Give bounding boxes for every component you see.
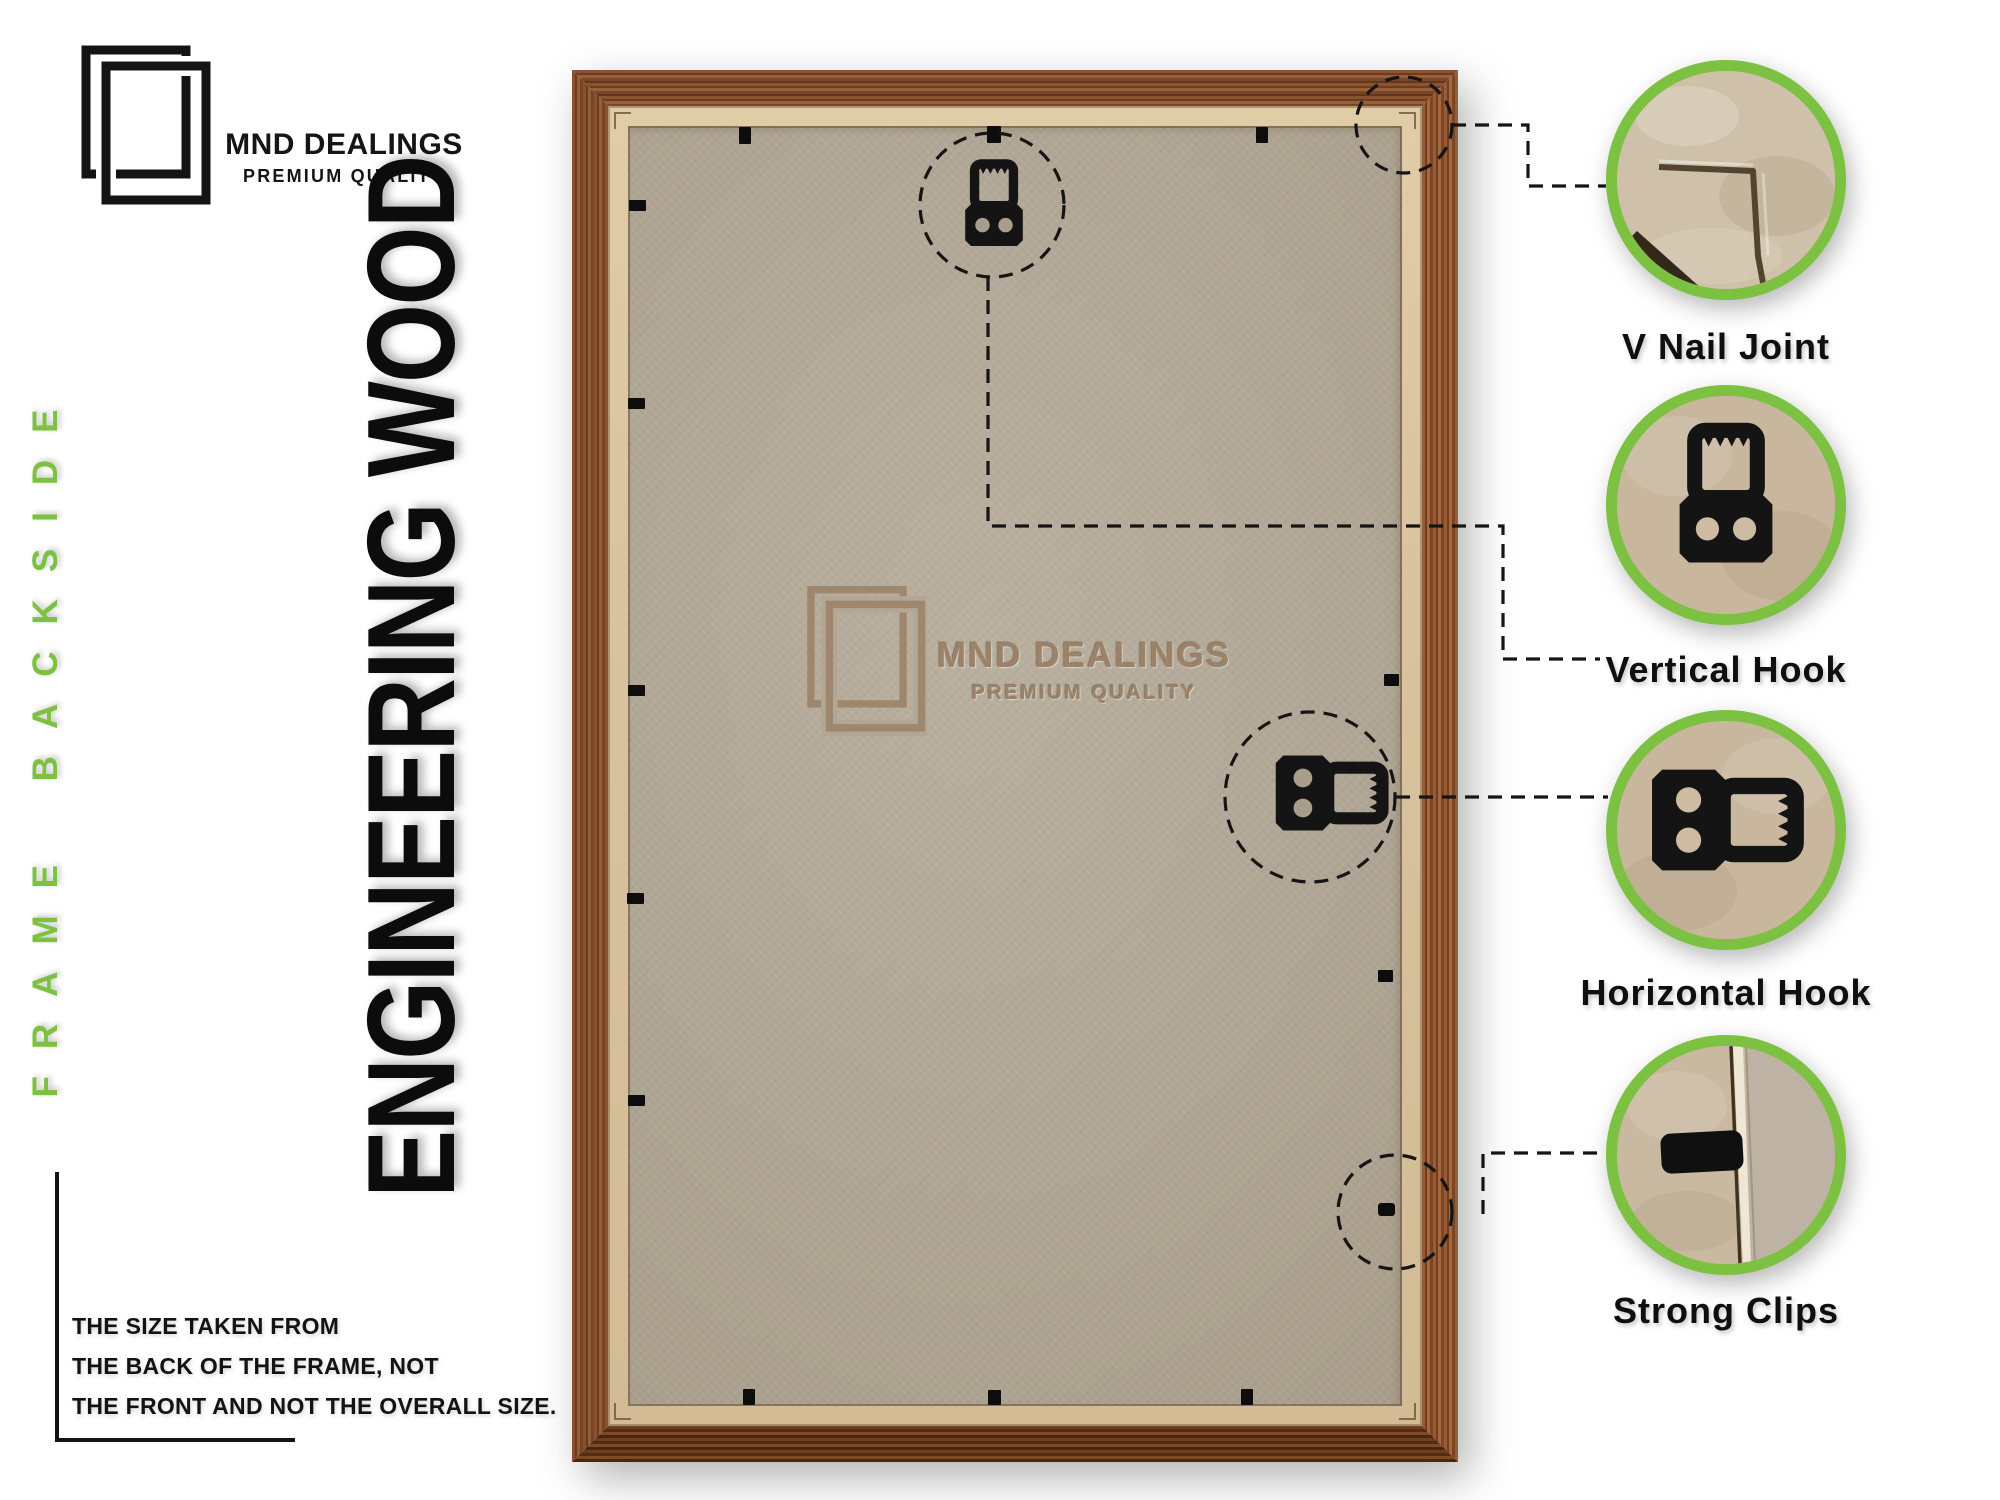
watermark-name: MND DEALINGS: [937, 636, 1231, 676]
size-note: THE SIZE TAKEN FROM THE BACK OF THE FRAM…: [72, 1306, 557, 1426]
frame-clip: [1256, 127, 1268, 143]
frame-clip: [739, 127, 751, 144]
brand-frame-icon: [60, 36, 212, 208]
horizontal-hook-photo: [1617, 721, 1835, 939]
frame-wood-bottom: [572, 1426, 1458, 1462]
vertical-hook-photo: [1617, 396, 1835, 614]
watermark-tagline: PREMIUM QUALITY: [937, 682, 1231, 705]
watermark-text: MND DEALINGS PREMIUM QUALITY: [937, 636, 1231, 705]
frame-clip: [1241, 1389, 1253, 1405]
watermark: MND DEALINGS PREMIUM QUALITY: [787, 552, 1231, 760]
frame-wood-top: [572, 70, 1458, 106]
size-note-line-3: THE FRONT AND NOT THE OVERALL SIZE.: [72, 1386, 557, 1426]
strong-clip-on-frame: [1378, 1203, 1395, 1216]
watermark-frame-icon: [787, 552, 927, 760]
callout-label-vertical-hook: Vertical Hook: [1605, 649, 1846, 691]
frame-clip: [743, 1389, 755, 1405]
frame-clip: [628, 685, 645, 696]
frame-clip: [629, 200, 646, 211]
strong-clips-photo: [1617, 1046, 1835, 1264]
page: { "brand": { "name": "MND DEALINGS", "ta…: [0, 0, 2000, 1500]
connector-strong-clips: [1483, 1153, 1605, 1214]
vertical-hook-icon: [958, 158, 1030, 249]
frame-clip: [628, 1095, 645, 1106]
corner-mark-icon: [614, 1403, 631, 1420]
callout-circle-horizontal-hook: [1606, 710, 1846, 950]
frame-wood-left: [572, 70, 608, 1462]
engineering-wood-label: ENGINEERING WOOD: [342, 202, 482, 1197]
frame-wood-right: [1422, 70, 1458, 1462]
connector-v-nail: [1452, 125, 1606, 186]
note-bracket-vertical: [55, 1172, 59, 1440]
callout-label-strong-clips: Strong Clips: [1613, 1290, 1839, 1332]
frame-back-photo: MND DEALINGS PREMIUM QUALITY: [572, 70, 1458, 1462]
corner-mark-icon: [1399, 1403, 1416, 1420]
frame-clip: [1384, 674, 1399, 686]
v-nail-joint-photo: [1617, 71, 1835, 289]
frame-clip: [627, 893, 644, 904]
callout-label-v-nail-joint: V Nail Joint: [1622, 326, 1830, 368]
note-bracket-horizontal: [55, 1438, 295, 1442]
corner-mark-icon: [614, 112, 631, 129]
frame-clip: [987, 126, 1001, 143]
size-note-line-1: THE SIZE TAKEN FROM: [72, 1306, 557, 1346]
size-note-line-2: THE BACK OF THE FRAME, NOT: [72, 1346, 557, 1386]
callout-label-horizontal-hook: Horizontal Hook: [1581, 972, 1872, 1014]
callout-circle-v-nail-joint: [1606, 60, 1846, 300]
frame-clip: [988, 1390, 1001, 1405]
frame-clip: [628, 398, 645, 409]
horizontal-hook-icon: [1272, 746, 1390, 840]
callout-circle-strong-clips: [1606, 1035, 1846, 1275]
callout-circle-vertical-hook: [1606, 385, 1846, 625]
corner-mark-icon: [1399, 112, 1416, 129]
frame-clip: [1378, 970, 1393, 982]
frame-backside-label: FRAME BACKSIDE: [24, 325, 68, 1155]
